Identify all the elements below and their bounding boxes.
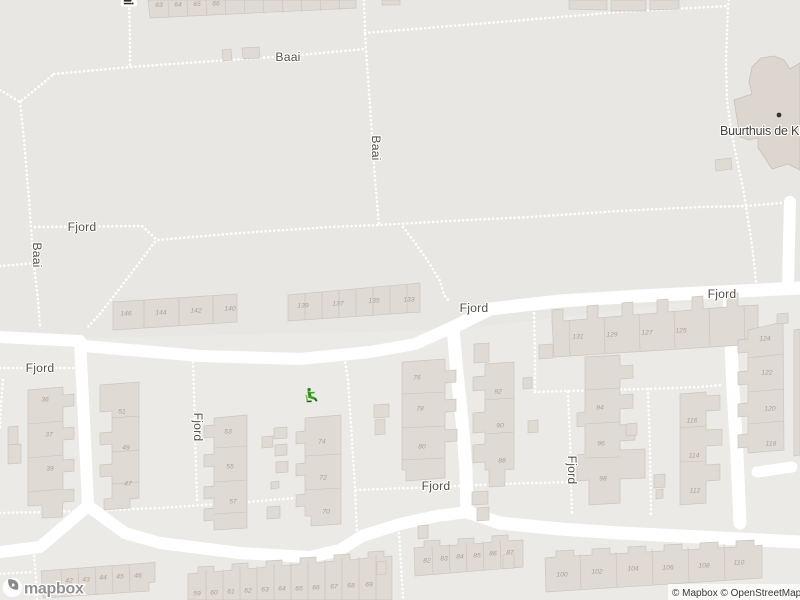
svg-text:65: 65 xyxy=(295,586,303,593)
svg-text:45: 45 xyxy=(116,574,124,581)
svg-text:70: 70 xyxy=(322,509,330,516)
svg-text:36: 36 xyxy=(41,397,49,404)
svg-text:74: 74 xyxy=(318,439,326,446)
svg-text:64: 64 xyxy=(278,586,286,593)
svg-text:Fjord: Fjord xyxy=(26,361,55,375)
svg-text:131: 131 xyxy=(572,334,583,341)
svg-text:44: 44 xyxy=(99,575,107,582)
svg-text:135: 135 xyxy=(368,298,379,305)
svg-text:63: 63 xyxy=(155,2,163,9)
svg-text:116: 116 xyxy=(687,418,698,425)
svg-text:120: 120 xyxy=(764,406,775,413)
svg-text:129: 129 xyxy=(606,332,617,339)
svg-text:122: 122 xyxy=(761,370,772,377)
svg-text:66: 66 xyxy=(212,1,220,8)
svg-text:57: 57 xyxy=(229,499,237,506)
svg-text:Fjord: Fjord xyxy=(191,413,205,442)
svg-text:98: 98 xyxy=(599,476,607,483)
svg-text:62: 62 xyxy=(244,588,252,595)
svg-text:67: 67 xyxy=(330,584,338,591)
svg-text:37: 37 xyxy=(45,432,53,439)
svg-text:83: 83 xyxy=(440,556,448,563)
svg-text:Baai: Baai xyxy=(30,242,44,267)
svg-text:80: 80 xyxy=(418,444,426,451)
svg-text:60: 60 xyxy=(210,590,218,597)
svg-text:106: 106 xyxy=(662,565,673,572)
svg-text:90: 90 xyxy=(496,423,504,430)
svg-text:66: 66 xyxy=(312,585,320,592)
svg-text:46: 46 xyxy=(134,573,142,580)
svg-text:108: 108 xyxy=(698,563,709,570)
svg-text:47: 47 xyxy=(124,481,132,488)
svg-text:100: 100 xyxy=(556,572,567,579)
svg-text:Fjord: Fjord xyxy=(422,479,451,493)
svg-text:Fjord: Fjord xyxy=(565,456,579,485)
svg-text:Fjord: Fjord xyxy=(460,301,489,315)
svg-text:78: 78 xyxy=(416,406,424,413)
svg-text:112: 112 xyxy=(690,488,701,495)
svg-text:127: 127 xyxy=(641,330,652,337)
svg-text:82: 82 xyxy=(423,558,431,565)
svg-text:84: 84 xyxy=(456,554,464,561)
svg-text:64: 64 xyxy=(174,2,182,9)
svg-text:mapbox: mapbox xyxy=(24,581,84,598)
svg-text:69: 69 xyxy=(365,582,373,589)
svg-text:118: 118 xyxy=(766,441,777,448)
svg-text:125: 125 xyxy=(675,328,686,335)
svg-text:140: 140 xyxy=(224,306,235,313)
svg-text:Baai: Baai xyxy=(275,50,300,64)
svg-text:114: 114 xyxy=(689,453,700,460)
svg-text:96: 96 xyxy=(597,441,605,448)
svg-text:86: 86 xyxy=(489,551,497,558)
svg-text:51: 51 xyxy=(118,409,126,416)
svg-text:65: 65 xyxy=(193,1,201,8)
svg-text:124: 124 xyxy=(759,336,770,343)
svg-text:142: 142 xyxy=(190,308,201,315)
svg-text:59: 59 xyxy=(193,591,201,598)
svg-text:133: 133 xyxy=(403,297,414,304)
svg-text:53: 53 xyxy=(224,429,232,436)
svg-text:110: 110 xyxy=(734,560,745,567)
svg-text:55: 55 xyxy=(226,464,234,471)
svg-text:Buurthuis de Kru: Buurthuis de Kru xyxy=(720,124,800,138)
svg-text:Fjord: Fjord xyxy=(708,287,737,301)
svg-text:49: 49 xyxy=(122,445,130,452)
svg-text:94: 94 xyxy=(596,405,604,412)
svg-text:88: 88 xyxy=(498,458,506,465)
svg-text:102: 102 xyxy=(591,569,602,576)
svg-text:61: 61 xyxy=(227,589,235,596)
svg-text:39: 39 xyxy=(46,466,54,473)
svg-text:139: 139 xyxy=(297,303,308,310)
svg-text:144: 144 xyxy=(155,310,166,317)
svg-text:146: 146 xyxy=(120,311,131,318)
svg-text:72: 72 xyxy=(319,475,327,482)
svg-text:68: 68 xyxy=(347,583,355,590)
svg-text:92: 92 xyxy=(494,389,502,396)
svg-text:Baai: Baai xyxy=(369,135,383,160)
svg-text:76: 76 xyxy=(413,375,421,382)
svg-text:Fjord: Fjord xyxy=(68,220,97,234)
svg-text:© Mapbox © OpenStreetMap: © Mapbox © OpenStreetMap xyxy=(672,588,800,599)
svg-text:85: 85 xyxy=(473,553,481,560)
svg-text:137: 137 xyxy=(332,301,343,308)
svg-text:63: 63 xyxy=(261,587,269,594)
svg-text:104: 104 xyxy=(627,566,638,573)
